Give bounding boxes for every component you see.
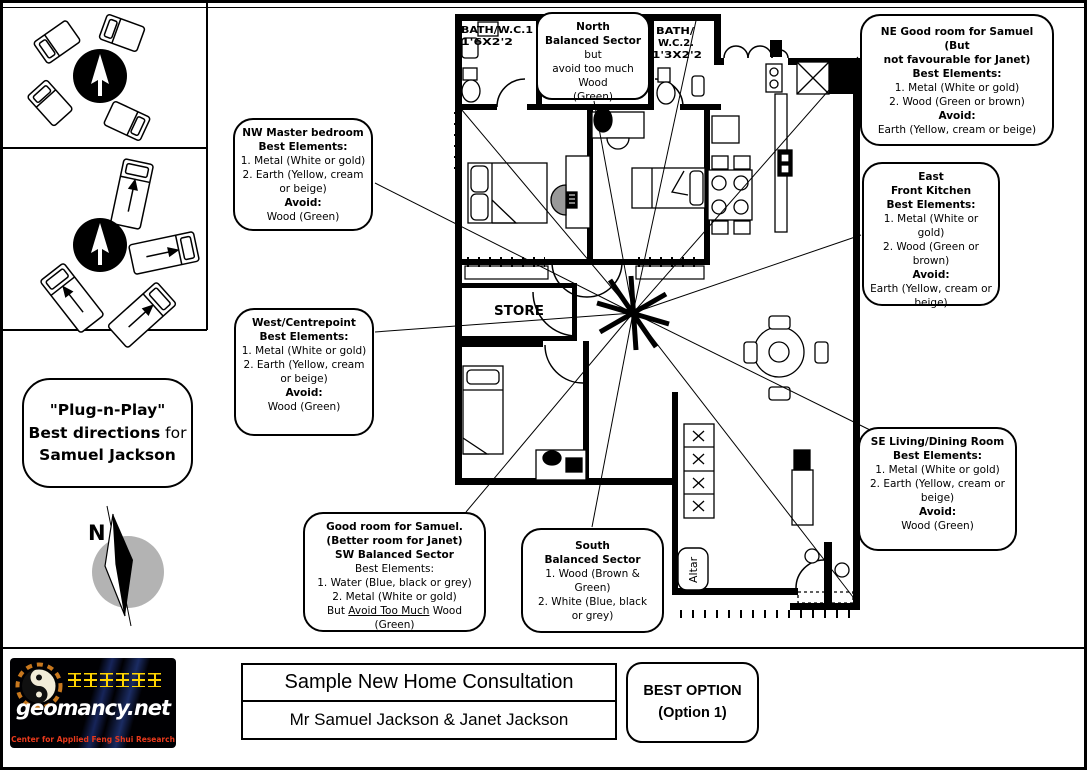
callout-title: North xyxy=(543,21,643,35)
cjk-glyph xyxy=(68,673,81,687)
best-option-line1: BEST OPTION xyxy=(643,681,741,703)
bold-text: Best directions xyxy=(29,424,161,442)
callout-line: avoid too much Wood xyxy=(543,63,643,91)
underlined-text: Avoid Too Much xyxy=(348,605,429,617)
callout-title: NE Good room for Samuel (But xyxy=(867,26,1047,54)
callout-title: East xyxy=(869,171,993,185)
avoid-item: Earth (Yellow, cream or beige) xyxy=(869,283,993,311)
element-item: 1. Wood (Brown & Green) xyxy=(536,568,649,596)
master-bedroom-furniture xyxy=(468,156,590,228)
avoid-header: Avoid: xyxy=(865,506,1010,520)
best-elements-header: Best Elements: xyxy=(310,563,479,577)
element-item: 2. Earth (Yellow, cream or beige) xyxy=(241,359,367,387)
centre-star xyxy=(597,276,669,350)
regular-text: But xyxy=(327,605,348,617)
element-item: 1. Metal (White or gold) xyxy=(865,464,1010,478)
bath2-label: BATH/ xyxy=(656,26,694,37)
kitchen-furniture xyxy=(708,62,829,234)
callout-sw-good-room: Good room for Samuel. (Better room for J… xyxy=(303,512,486,632)
bed-arrangement-diagram-top xyxy=(27,14,151,141)
bedroom2-furniture xyxy=(592,108,705,208)
title-block: Sample New Home Consultation Mr Samuel J… xyxy=(241,663,617,740)
callout-title: SE Living/Dining Room xyxy=(865,436,1010,450)
logo-brand-text: geomancy.net xyxy=(10,696,176,720)
avoid-header: Avoid: xyxy=(241,387,367,401)
regular-text: for xyxy=(160,424,186,442)
logo-tagline: Center for Applied Feng Shui Research xyxy=(10,735,176,744)
best-elements-header: Best Elements: xyxy=(241,331,367,345)
avoid-header: Avoid: xyxy=(240,197,366,211)
element-item: 1. Metal (White or gold) xyxy=(869,213,993,241)
cjk-glyph xyxy=(84,673,97,687)
callout-south: South Balanced Sector 1. Wood (Brown & G… xyxy=(521,528,664,633)
element-item: 2. Wood (Green or brown) xyxy=(869,241,993,269)
callout-nw-master-bedroom: NW Master bedroom Best Elements: 1. Meta… xyxy=(233,118,373,231)
best-elements-header: Best Elements: xyxy=(865,450,1010,464)
callout-title: not favourable for Janet) xyxy=(867,54,1047,68)
bath2-size-label: 1'3X2'2 xyxy=(652,50,702,61)
cjk-glyph xyxy=(132,673,145,687)
best-option-line2: (Option 1) xyxy=(658,703,726,725)
bath1-size-label: 1'6X2'2 xyxy=(461,37,513,48)
callout-title: South xyxy=(536,540,649,554)
sw-bedroom-furniture xyxy=(463,366,586,480)
callout-title: Balanced Sector xyxy=(536,554,649,568)
plug-line2: Best directions for xyxy=(24,422,191,444)
element-item: 1. Metal (White or gold) xyxy=(241,345,367,359)
consultation-title: Sample New Home Consultation xyxy=(243,665,615,702)
callout-title: Good room for Samuel. xyxy=(310,521,479,535)
callout-line: Balanced Sector but xyxy=(543,35,643,63)
callout-se-living-dining: SE Living/Dining Room Best Elements: 1. … xyxy=(858,427,1017,551)
geomancy-logo: geomancy.net Center for Applied Feng Shu… xyxy=(10,658,176,748)
best-elements-header: Best Elements: xyxy=(240,141,366,155)
plug-n-play-bubble: "Plug-n-Play" Best directions for Samuel… xyxy=(22,378,193,488)
avoid-header: Avoid: xyxy=(867,110,1047,124)
altar: Altar xyxy=(678,548,708,590)
compass-n-label: N xyxy=(88,521,106,545)
callout-line: But Avoid Too Much Wood (Green) xyxy=(310,605,479,633)
plug-line3: Samuel Jackson xyxy=(24,444,191,466)
avoid-item: Wood (Green) xyxy=(241,401,367,415)
callout-title: SW Balanced Sector xyxy=(310,549,479,563)
bold-text: Balanced Sector xyxy=(545,35,641,47)
best-elements-header: Best Elements: xyxy=(867,68,1047,82)
callout-north: North Balanced Sector but avoid too much… xyxy=(536,12,650,100)
element-item: 2. Earth (Yellow, cream or beige) xyxy=(865,478,1010,506)
element-item: 2. Earth (Yellow, cream or beige) xyxy=(240,169,366,197)
bed-arrangement-diagram-middle xyxy=(40,159,200,349)
regular-text: but xyxy=(584,49,601,61)
plug-line1: "Plug-n-Play" xyxy=(24,399,191,421)
cjk-glyph xyxy=(116,673,129,687)
logo-chinese-text xyxy=(68,673,161,687)
avoid-item: Earth (Yellow, cream or beige) xyxy=(867,124,1047,138)
client-names: Mr Samuel Jackson & Janet Jackson xyxy=(243,702,615,738)
callout-title: NW Master bedroom xyxy=(240,127,366,141)
store-label: STORE xyxy=(494,304,544,319)
bath2-wc-label: W.C.2. xyxy=(658,38,694,49)
callout-line: (Green) xyxy=(543,91,643,105)
callout-title: (Better room for Janet) xyxy=(310,535,479,549)
callout-title: West/Centrepoint xyxy=(241,317,367,331)
callout-east-front-kitchen: East Front Kitchen Best Elements: 1. Met… xyxy=(862,162,1000,306)
avoid-header: Avoid: xyxy=(869,269,993,283)
element-item: 2. Wood (Green or brown) xyxy=(867,96,1047,110)
cjk-glyph xyxy=(148,673,161,687)
element-item: 2. White (Blue, black or grey) xyxy=(536,596,649,624)
element-item: 1. Metal (White or gold) xyxy=(240,155,366,169)
avoid-item: Wood (Green) xyxy=(240,211,366,225)
bath1-label: BATH/W.C.1 xyxy=(461,25,533,36)
best-elements-header: Best Elements: xyxy=(869,199,993,213)
element-item: 2. Metal (White or gold) xyxy=(310,591,479,605)
callout-title: Front Kitchen xyxy=(869,185,993,199)
avoid-item: Wood (Green) xyxy=(865,520,1010,534)
best-option-badge: BEST OPTION (Option 1) xyxy=(626,662,759,743)
altar-label: Altar xyxy=(687,556,700,583)
callout-west-centrepoint: West/Centrepoint Best Elements: 1. Metal… xyxy=(234,308,374,436)
compass-north-arrow: N xyxy=(88,506,164,626)
top-divider-line xyxy=(0,7,1087,8)
callout-ne-good-room: NE Good room for Samuel (But not favoura… xyxy=(860,14,1054,146)
cjk-glyph xyxy=(100,673,113,687)
element-item: 1. Metal (White or gold) xyxy=(867,82,1047,96)
element-item: 1. Water (Blue, black or grey) xyxy=(310,577,479,591)
